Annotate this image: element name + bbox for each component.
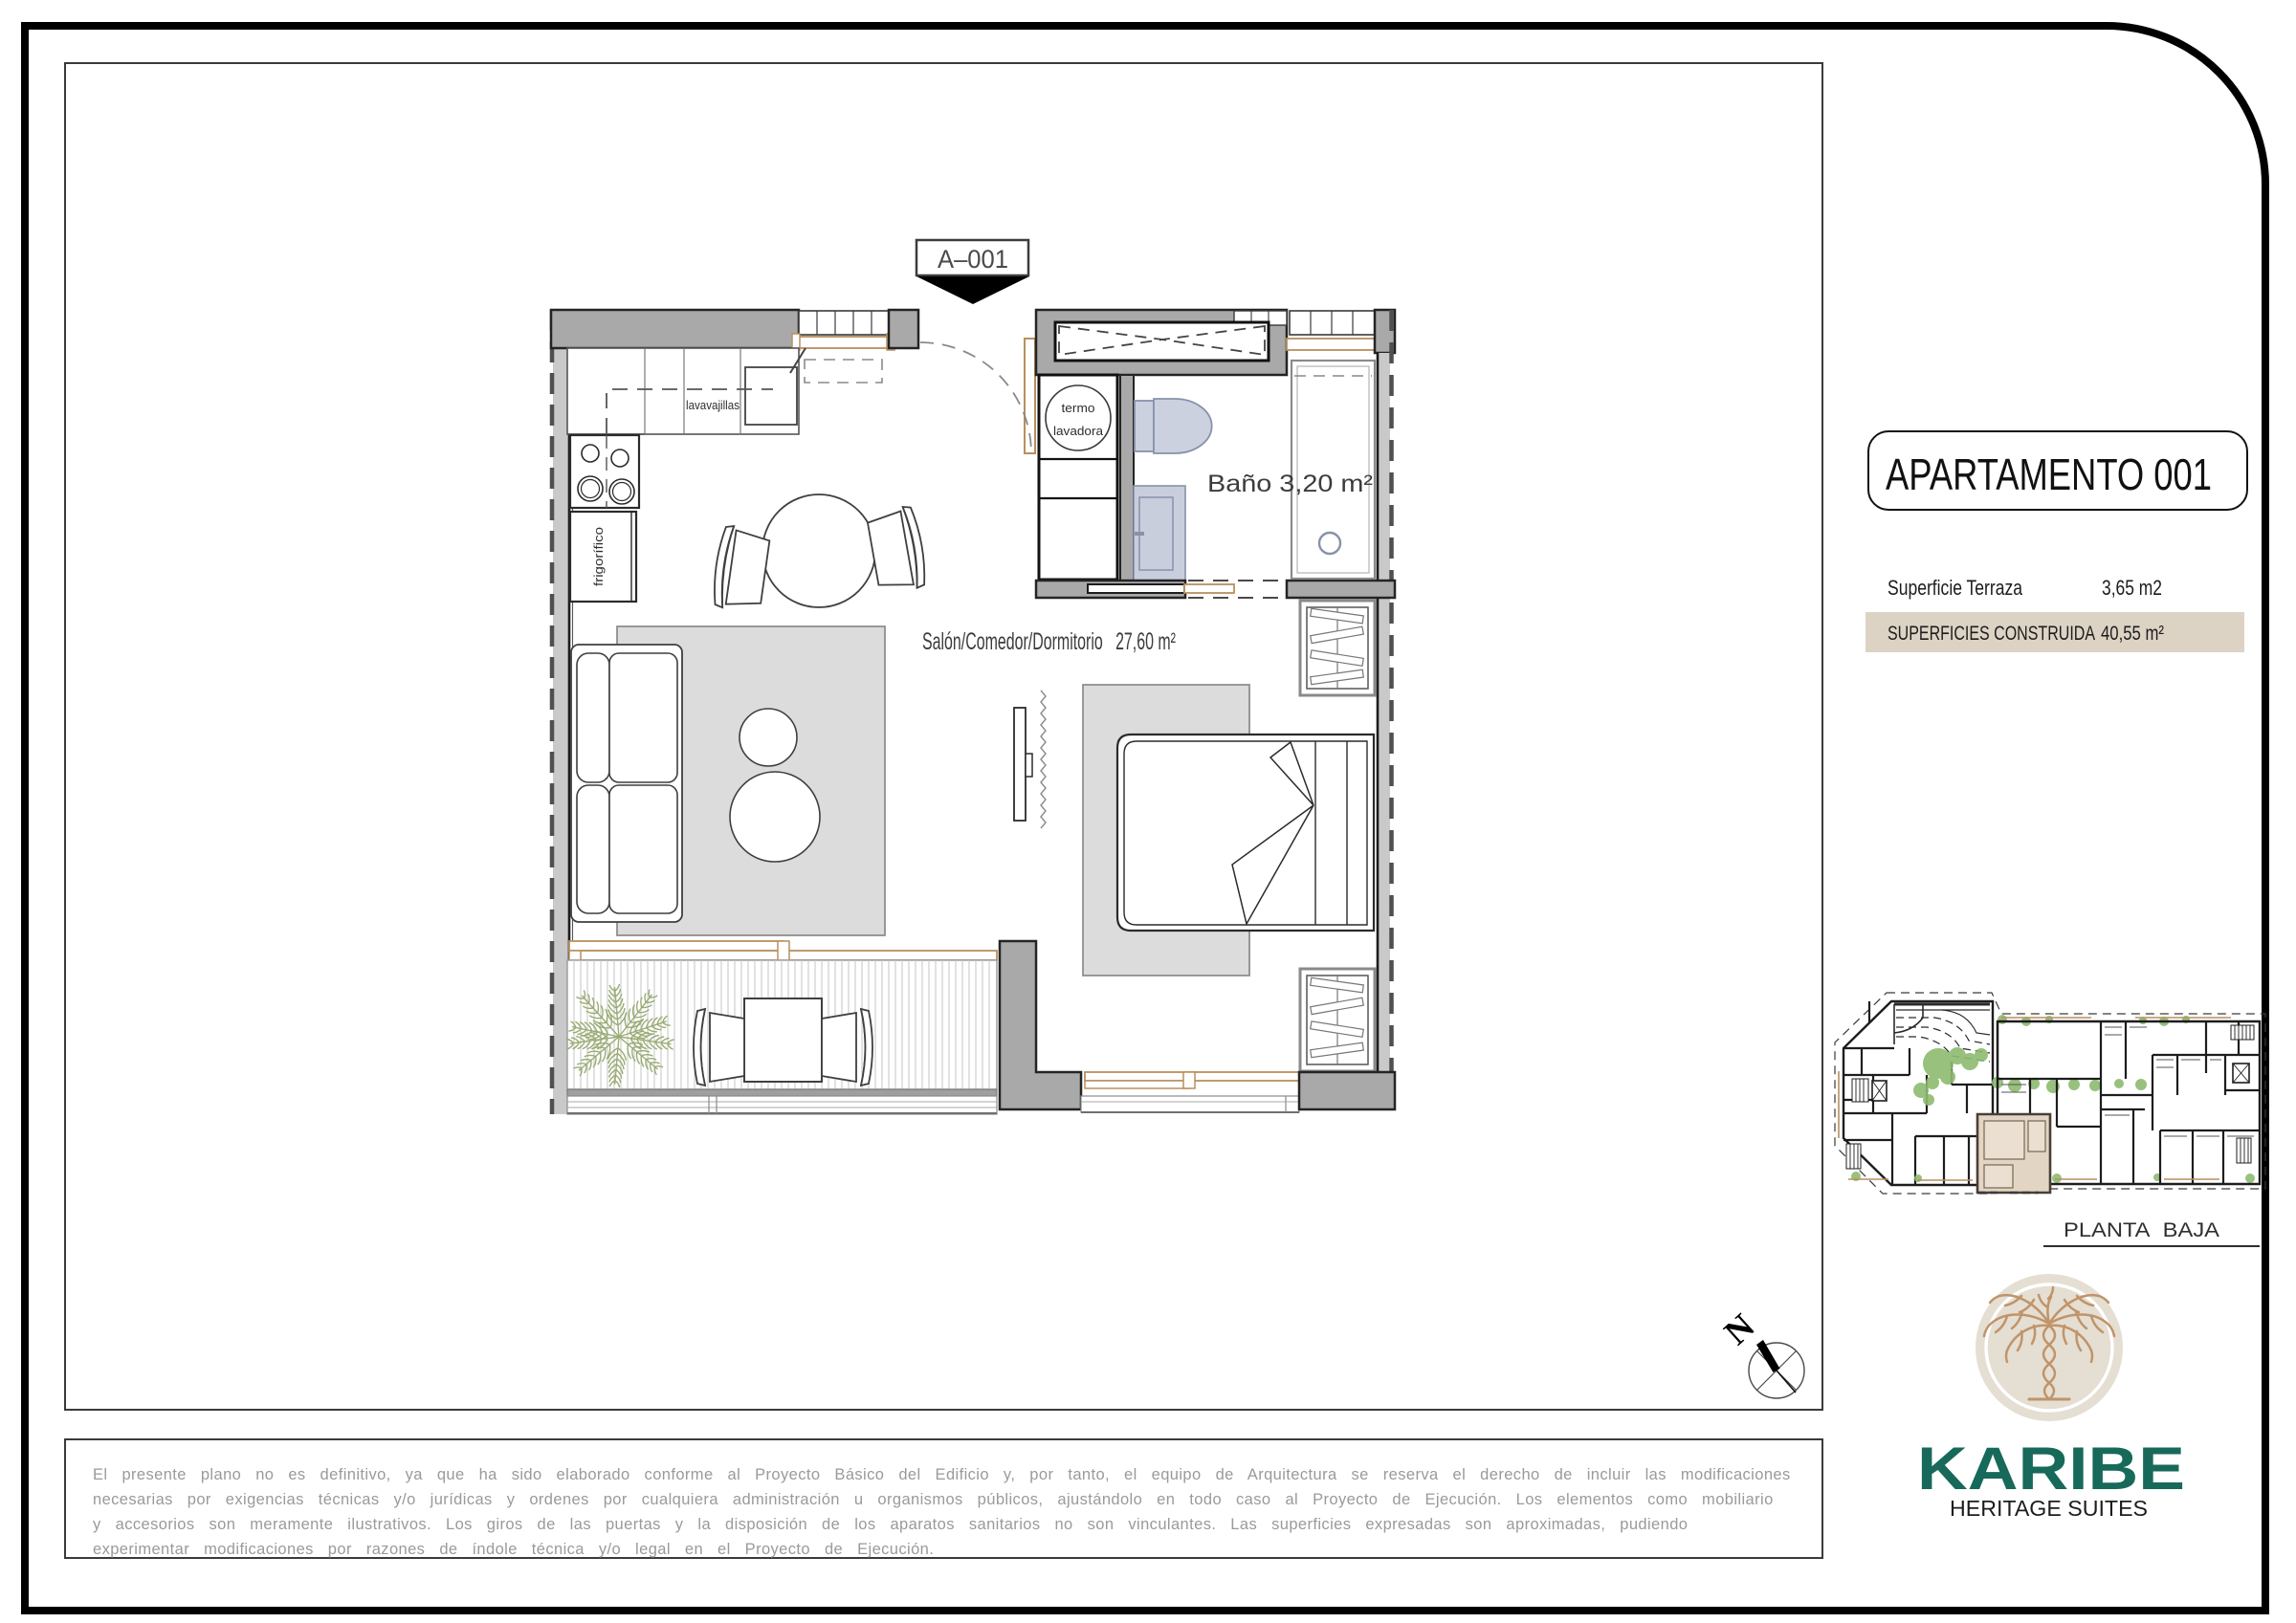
svg-text:Superficie Terraza: Superficie Terraza bbox=[1888, 576, 2023, 600]
svg-text:termo: termo bbox=[1062, 402, 1095, 415]
svg-text:40,55 m²: 40,55 m² bbox=[2101, 623, 2164, 645]
svg-text:HERITAGE SUITES: HERITAGE SUITES bbox=[1950, 1496, 2148, 1521]
svg-text:A–001: A–001 bbox=[938, 245, 1008, 274]
svg-text:APARTAMENTO 001: APARTAMENTO 001 bbox=[1886, 450, 2212, 499]
svg-text:lavadora: lavadora bbox=[1053, 425, 1103, 438]
svg-text:SUPERFICIES CONSTRUIDA: SUPERFICIES CONSTRUIDA bbox=[1888, 623, 2095, 645]
svg-text:Salón/Comedor/Dormitorio 27,: Salón/Comedor/Dormitorio 27,60 m² bbox=[922, 628, 1176, 655]
svg-text:KARIBE: KARIBE bbox=[1917, 1436, 2185, 1502]
svg-text:frigorífico: frigorífico bbox=[591, 527, 606, 586]
svg-text:N: N bbox=[1717, 1306, 1762, 1353]
svg-text:lavavajillas: lavavajillas bbox=[686, 398, 740, 412]
svg-text:PLANTA BAJA: PLANTA BAJA bbox=[2064, 1219, 2219, 1241]
svg-text:Baño 3,20 m²: Baño 3,20 m² bbox=[1207, 471, 1373, 497]
svg-text:3,65 m2: 3,65 m2 bbox=[2102, 576, 2162, 600]
